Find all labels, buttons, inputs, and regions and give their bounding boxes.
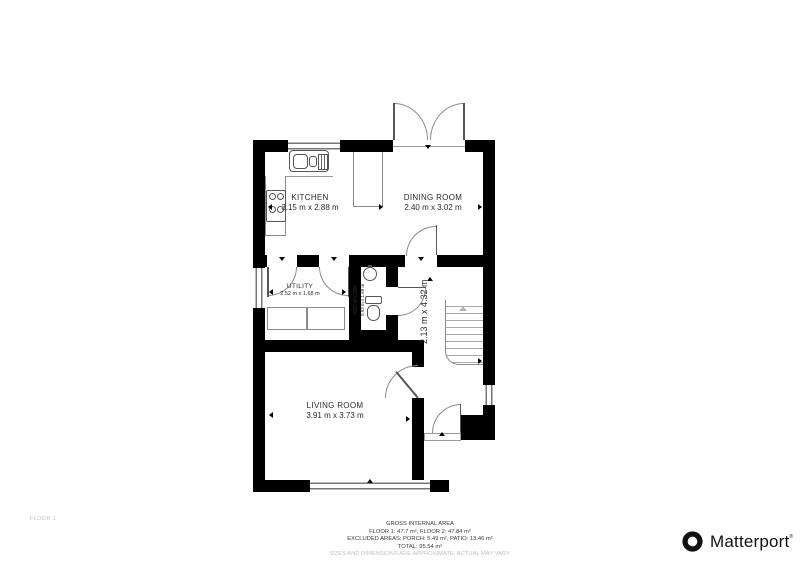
area-line-total: TOTAL: 95.54 m² [290,544,550,552]
front-door-arc [432,404,461,433]
front-door-leaf [460,404,462,433]
toilet-tank [365,296,382,304]
french-door-left-leaf [393,103,395,140]
marker-living-window [367,476,373,483]
marker-front-door [439,429,445,436]
sink-bowl-large [293,154,308,169]
utility-name: UTILITY [260,283,340,291]
kitchen-sink [289,150,329,172]
brand-logo: Matterport® [681,530,793,553]
area-line-floors: FLOOR 1: 47.7 m², FLOOR 2: 47.84 m² [290,529,550,537]
marker-living-left [266,412,273,418]
dining-door-arc [406,226,436,256]
marker-french-door [425,145,431,152]
wall-living-top [253,340,412,352]
marker-dining-door [418,257,424,264]
french-door-right-arc [430,103,464,140]
utility-counter-2 [307,307,345,330]
bathroom-door-opening [386,287,398,315]
kitchen-label: KITCHEN 3.15 m x 2.88 m [254,193,366,212]
living-dims: 3.91 m x 3.73 m [279,411,391,421]
matterport-pinwheel-icon [681,530,704,553]
toilet-bowl [367,305,380,321]
area-line-excluded: EXCLUDED AREAS; PORCH: 5.49 m², PATIO: 1… [290,536,550,544]
dining-label: DINING ROOM 2.40 m x 3.02 m [377,193,489,212]
wall-living-right [412,340,424,480]
hallway-dims: 2.13 m x 4.32 m [419,272,429,352]
stairs-up-arrow-icon [459,303,467,311]
area-line-title: GROSS INTERNAL AREA [290,521,550,529]
marker-utility-door-right [331,257,337,264]
sink-draining-board [318,154,328,170]
french-door-left-arc [394,103,428,140]
dining-name: DINING ROOM [377,193,489,203]
wall-entry-step [461,415,483,440]
dining-door-leaf [436,225,438,255]
hall-window [483,385,495,405]
bathroom-sink-tap [368,265,372,268]
trademark-icon: ® [789,534,793,540]
sink-bowl-small [309,156,317,167]
utility-counter-1 [267,307,307,330]
living-label: LIVING ROOM 3.91 m x 3.73 m [279,401,391,420]
utility-label: UTILITY 2.52 m x 1.68 m [260,283,340,298]
area-summary: GROSS INTERNAL AREA FLOOR 1: 47.7 m², FL… [290,521,550,559]
dining-dims: 2.40 m x 3.02 m [377,203,489,213]
kitchen-dims: 3.15 m x 2.88 m [254,203,366,213]
brand-name: Matterport® [710,532,793,552]
kitchen-name: KITCHEN [254,193,366,203]
floor-plan: KITCHEN 3.15 m x 2.88 m DINING ROOM 2.40… [253,90,495,502]
bathroom-sink [363,267,377,281]
marker-utility-door-left [279,257,285,264]
floor-label: FLOOR 1 [30,516,56,522]
wall-bathroom-bottom [349,330,398,340]
bathroom-name: BATHROOM [353,271,359,329]
disclaimer: SIZES AND DIMENSIONS ARE APPROXIMATE, AC… [290,551,550,559]
utility-dims: 2.52 m x 1.68 m [260,291,340,299]
french-door-right-leaf [463,103,465,140]
marker-utility-right [342,289,349,295]
bathroom-dims: 0.93 m x 1.68 m [360,271,365,329]
marker-living-right [406,416,413,422]
living-name: LIVING ROOM [279,401,391,411]
marker-stairs [478,358,485,364]
